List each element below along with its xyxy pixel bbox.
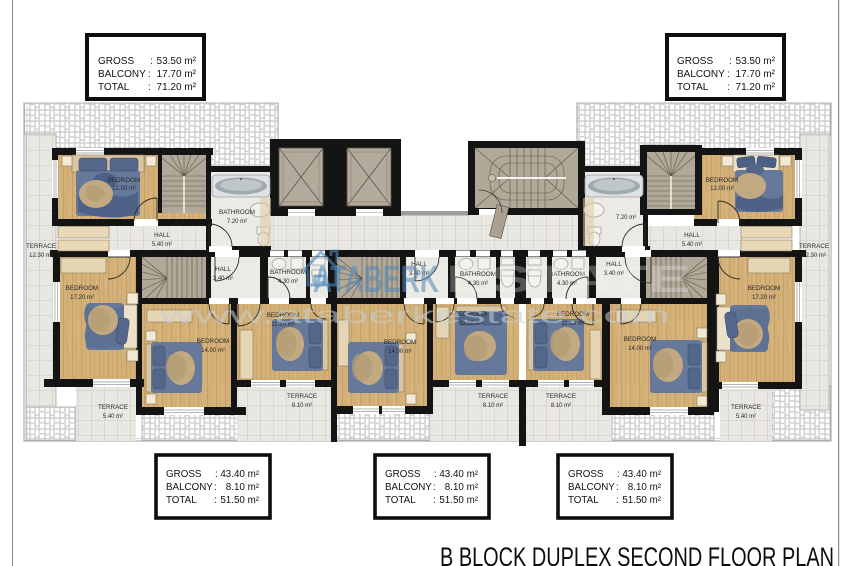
svg-text:8.10 m²: 8.10 m² — [292, 403, 312, 409]
svg-text:TOTAL: TOTAL — [677, 82, 709, 93]
svg-text:71.20 m²: 71.20 m² — [157, 82, 197, 93]
svg-text:BEDROOM: BEDROOM — [384, 339, 417, 346]
svg-text:BALCONY: BALCONY — [166, 482, 213, 493]
svg-text:7.20 m²: 7.20 m² — [227, 219, 247, 225]
svg-text:5.40 m²: 5.40 m² — [103, 414, 123, 420]
svg-text:TOTAL: TOTAL — [568, 495, 599, 506]
svg-text:5.40 m²: 5.40 m² — [736, 414, 756, 420]
svg-text:43.40 m²: 43.40 m² — [622, 469, 661, 480]
svg-text:HALL: HALL — [684, 232, 700, 239]
svg-text:17.20 m²: 17.20 m² — [70, 295, 94, 301]
svg-text:GROSS: GROSS — [568, 469, 604, 480]
svg-text:51.50 m²: 51.50 m² — [622, 495, 661, 506]
svg-text::: : — [150, 56, 153, 67]
svg-text:TERRACE: TERRACE — [26, 243, 56, 250]
svg-text:7.20 m²: 7.20 m² — [616, 215, 636, 221]
svg-text:TERRACE: TERRACE — [287, 393, 317, 400]
svg-text:17.70 m²: 17.70 m² — [736, 69, 776, 80]
svg-text:12.00 m²: 12.00 m² — [710, 186, 734, 192]
svg-text:TERRACE: TERRACE — [546, 393, 576, 400]
svg-text:43.40 m²: 43.40 m² — [439, 469, 478, 480]
svg-text::: : — [616, 495, 619, 506]
svg-text:TOTAL: TOTAL — [385, 495, 416, 506]
svg-text:71.20 m²: 71.20 m² — [736, 82, 776, 93]
svg-text:BEDROOM: BEDROOM — [706, 177, 739, 184]
svg-text:ESTATE: ESTATE — [446, 259, 691, 301]
svg-text:TERRACE: TERRACE — [98, 404, 128, 411]
svg-text:17.20 m²: 17.20 m² — [752, 295, 776, 301]
svg-text:8.10 m²: 8.10 m² — [226, 482, 260, 493]
svg-text:BALCONY: BALCONY — [568, 482, 615, 493]
svg-text:BEDROOM: BEDROOM — [748, 285, 781, 292]
svg-text:51.50 m²: 51.50 m² — [439, 495, 478, 506]
svg-text:12.00 m²: 12.00 m² — [112, 186, 136, 192]
svg-text:BATHROOM: BATHROOM — [270, 269, 306, 276]
svg-text:TERRACE: TERRACE — [478, 393, 508, 400]
svg-text::: : — [433, 482, 436, 493]
svg-text:53.50 m²: 53.50 m² — [157, 56, 197, 67]
svg-text:ATABERK: ATABERK — [313, 259, 439, 301]
svg-text::: : — [148, 82, 151, 93]
svg-text::: : — [214, 495, 217, 506]
svg-text:12.30 m²: 12.30 m² — [802, 253, 826, 259]
svg-text:BEDROOM: BEDROOM — [197, 338, 230, 345]
svg-text:51.50 m²: 51.50 m² — [220, 495, 259, 506]
svg-text:8.10 m²: 8.10 m² — [551, 403, 571, 409]
svg-text:GROSS: GROSS — [98, 56, 134, 67]
svg-text:TERRACE: TERRACE — [731, 404, 761, 411]
svg-text:43.40 m²: 43.40 m² — [220, 469, 259, 480]
svg-text:BEDROOM: BEDROOM — [66, 285, 99, 292]
svg-text:12.30 m²: 12.30 m² — [29, 253, 53, 259]
svg-text:14.00 m²: 14.00 m² — [388, 349, 412, 355]
svg-text:14.00 m²: 14.00 m² — [201, 348, 225, 354]
svg-text::: : — [148, 69, 151, 80]
svg-text:5.40 m²: 5.40 m² — [152, 242, 172, 248]
svg-text::: : — [729, 56, 732, 67]
svg-text:8.10 m²: 8.10 m² — [483, 403, 503, 409]
svg-text::: : — [727, 69, 730, 80]
svg-text:www.ataberkestate.com: www.ataberkestate.com — [158, 302, 670, 328]
svg-text:4.30 m²: 4.30 m² — [278, 279, 298, 285]
svg-text:TOTAL: TOTAL — [98, 82, 130, 93]
svg-text:HALL: HALL — [215, 266, 231, 273]
svg-text:BALCONY: BALCONY — [98, 69, 146, 80]
svg-text:B BLOCK DUPLEX SECOND FLOOR PL: B BLOCK DUPLEX SECOND FLOOR PLAN — [440, 542, 834, 566]
svg-text:HALL: HALL — [154, 232, 170, 239]
svg-text:GROSS: GROSS — [385, 469, 421, 480]
svg-text:17.70 m²: 17.70 m² — [157, 69, 197, 80]
svg-text::: : — [215, 469, 218, 480]
svg-text::: : — [433, 495, 436, 506]
svg-text:BEDROOM: BEDROOM — [108, 177, 141, 184]
svg-text:14.00 m²: 14.00 m² — [628, 346, 652, 352]
svg-text:BALCONY: BALCONY — [677, 69, 725, 80]
svg-text:3.40 m²: 3.40 m² — [213, 276, 233, 282]
svg-text:BATHROOM: BATHROOM — [219, 209, 255, 216]
svg-text:BALCONY: BALCONY — [385, 482, 432, 493]
svg-text:5.40 m²: 5.40 m² — [682, 242, 702, 248]
svg-text:8.10 m²: 8.10 m² — [628, 482, 662, 493]
svg-text::: : — [434, 469, 437, 480]
svg-text:TERRACE: TERRACE — [799, 243, 829, 250]
svg-text::: : — [616, 482, 619, 493]
svg-text::: : — [617, 469, 620, 480]
svg-text:GROSS: GROSS — [677, 56, 713, 67]
svg-text:8.10 m²: 8.10 m² — [445, 482, 479, 493]
svg-text:GROSS: GROSS — [166, 469, 202, 480]
svg-text:53.50 m²: 53.50 m² — [736, 56, 776, 67]
svg-text::: : — [727, 82, 730, 93]
svg-text::: : — [214, 482, 217, 493]
svg-text:TOTAL: TOTAL — [166, 495, 197, 506]
svg-text:BEDROOM: BEDROOM — [624, 336, 657, 343]
